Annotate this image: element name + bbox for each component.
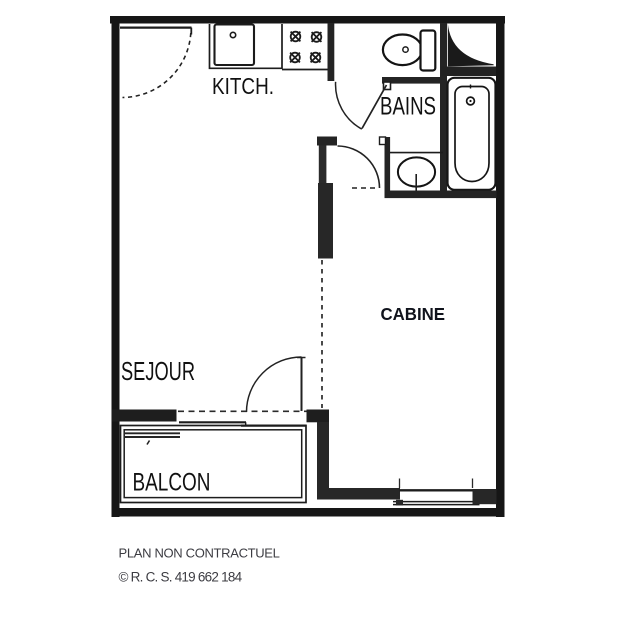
- svg-text:KITCH.: KITCH.: [212, 73, 274, 99]
- svg-text:SEJOUR: SEJOUR: [121, 356, 195, 386]
- svg-text:BAINS: BAINS: [380, 93, 436, 121]
- svg-text:© R. C. S. 419 662 184: © R. C. S. 419 662 184: [119, 570, 243, 585]
- svg-text:PLAN NON CONTRACTUEL: PLAN NON CONTRACTUEL: [119, 546, 281, 561]
- svg-text:BALCON: BALCON: [133, 469, 211, 497]
- svg-text:CABINE: CABINE: [381, 304, 446, 324]
